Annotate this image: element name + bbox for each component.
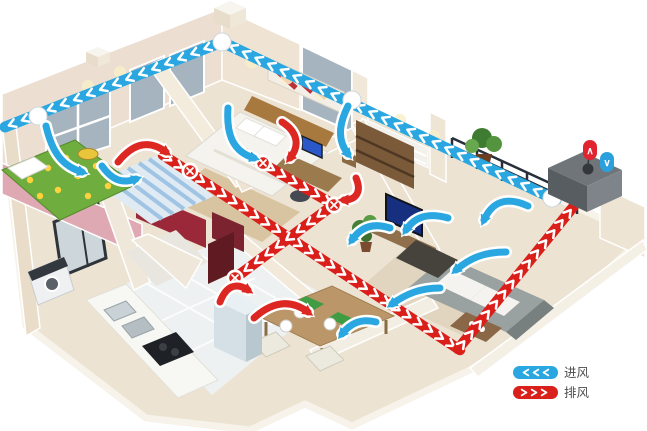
legend: 进风 排风 — [513, 366, 590, 400]
plant-pot — [360, 242, 372, 252]
exhaust-out-marker: ∧ — [586, 146, 593, 157]
legend-intake-pill — [513, 366, 558, 379]
fresh-in-marker: ∨ — [603, 158, 610, 169]
toy-car — [78, 149, 98, 160]
fresh-air-system-diagram: ∧ ∨ 进风 排风 — [0, 0, 647, 431]
legend-intake-label: 进风 — [564, 366, 590, 380]
legend-exhaust-label: 排风 — [564, 386, 590, 400]
fan-inlet — [583, 164, 594, 175]
